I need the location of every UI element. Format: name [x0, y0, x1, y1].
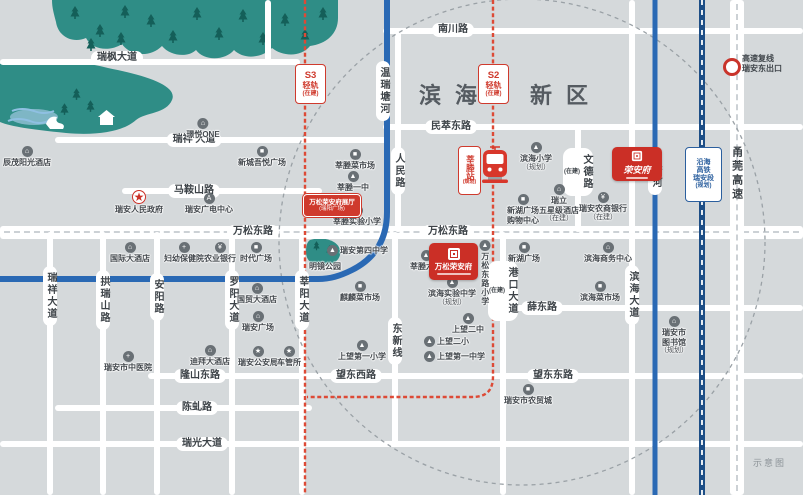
- mall-icon: ■: [518, 194, 529, 205]
- poi-label: 妇幼保健院: [164, 254, 204, 264]
- map-poi: ■滨海菜市场: [580, 281, 620, 303]
- road-label: 薛东路: [521, 301, 563, 315]
- road-label: 甬莞高速: [728, 140, 743, 208]
- school-icon: ▲: [531, 142, 542, 153]
- map-poi: ■新湖广场购物中心: [507, 194, 539, 225]
- star-icon: ★: [253, 346, 264, 357]
- road-label: 温瑞塘河: [376, 61, 390, 121]
- map-poi: ■时代广场: [240, 242, 272, 264]
- map-poi: ¥农业银行: [204, 242, 236, 264]
- hotel-icon: ⌂: [252, 283, 263, 294]
- map-poi: ■麒麟菜市场: [340, 281, 380, 303]
- badge-red: S3轻轨(在建): [295, 64, 326, 104]
- project-subline: [437, 273, 471, 275]
- road-label: 瑞祥大道: [43, 266, 57, 326]
- map-poi: A瑞安广电中心: [185, 193, 233, 215]
- map-poi: ⌂瑞安市图书馆（规划）: [660, 316, 688, 356]
- poi-label: 瑞安广场: [242, 323, 274, 333]
- poi-label: 新湖广场: [508, 254, 540, 264]
- map-poi: ■瑞安市农贸城: [504, 384, 552, 406]
- badge-blue: 沿海高铁瑞安段(规划): [685, 147, 722, 202]
- map-poi: ▲上望二小: [424, 336, 469, 347]
- road-label: 港口大道(在建): [488, 261, 518, 321]
- map-poi: ▲滨海小学（规划）: [520, 142, 552, 172]
- road-label: 陈虬路: [176, 401, 218, 415]
- poi-label: 麒麟菜市场: [340, 293, 380, 303]
- poi-label: 莘塍一中: [337, 183, 369, 193]
- school-icon: ▲: [463, 313, 474, 324]
- map-poi: ★车管所: [277, 346, 301, 368]
- map-poi: ★瑞安人民政府: [115, 190, 163, 215]
- map-poi: ⌂迪拜大酒店: [190, 345, 230, 367]
- exit-line1: 高速复线: [742, 54, 782, 64]
- logo-subline: [626, 177, 648, 179]
- building-icon: ⌂: [253, 311, 264, 322]
- hotel-icon: ⌂: [125, 242, 136, 253]
- poi-label: 瑞立五星级酒店（在建）: [539, 196, 579, 224]
- poi-label: 上望二小: [437, 337, 469, 347]
- mall-icon: ■: [251, 242, 262, 253]
- poi-label: 瑞安市中医院: [104, 363, 152, 373]
- star-icon: ★: [284, 346, 295, 357]
- building-icon: ⌂: [198, 118, 209, 129]
- map-poi: ▲瑞安第四中学: [327, 245, 388, 256]
- map-poi: ⌂瑞安广场: [242, 311, 274, 333]
- road-label: 安阳路: [150, 273, 164, 321]
- media-icon: A: [204, 193, 215, 204]
- hospital-icon: +: [123, 351, 134, 362]
- road-label: 滨海大道: [625, 265, 639, 325]
- map-poi: ¥瑞安农商银行（在建）: [579, 192, 627, 222]
- map-poi: ▲滨海实验中学（规划）: [428, 277, 476, 307]
- bank-icon: ¥: [215, 242, 226, 253]
- poi-label: 上望二中: [452, 325, 484, 335]
- map-poi: ⌂国贸大酒店: [237, 283, 277, 305]
- map-poi: ■新湖广场: [508, 242, 540, 264]
- poi-label: 万松东路小学: [480, 252, 490, 306]
- highway-exit-label: 高速复线 瑞安东出口: [742, 54, 782, 75]
- map-poi: ★瑞安公安局: [238, 346, 278, 368]
- poi-label: 瑞安农商银行（在建）: [579, 204, 627, 222]
- road-label: 拱瑞山路: [96, 270, 110, 330]
- building-icon: ⌂: [554, 184, 565, 195]
- poi-label: 滨海小学（规划）: [520, 154, 552, 172]
- poi-label: 瑞安市农贸城: [504, 396, 552, 406]
- road-label: 瑞光大道: [176, 437, 228, 451]
- library-icon: ⌂: [669, 316, 680, 327]
- hospital-icon: +: [179, 242, 190, 253]
- market-icon: ■: [523, 384, 534, 395]
- map-poi: ■新城吾悦广场: [238, 146, 286, 168]
- poi-label: 明镜公园: [309, 262, 341, 272]
- project-name: 万松荣安府: [435, 261, 473, 272]
- school-icon: ▲: [327, 245, 338, 256]
- poi-label: 滨海实验中学（规划）: [428, 289, 476, 307]
- school-icon: ▲: [424, 336, 435, 347]
- poi-label: 瑞安第四中学: [340, 246, 388, 256]
- gov-icon: ★: [132, 190, 146, 204]
- poi-label: 滨海菜市场: [580, 293, 620, 303]
- road-label: 瑞枫大道: [91, 51, 143, 65]
- road-label: 望东东路: [527, 369, 579, 383]
- school-icon: ▲: [480, 240, 491, 251]
- poi-label: 璟悦ONE: [186, 130, 219, 140]
- road-label: 莘阳大道: [295, 270, 309, 330]
- school-icon: ▲: [357, 340, 368, 351]
- logo-emblem-icon: [632, 150, 642, 160]
- badge-hall: 万松荣安府展厅(瑞阳广场): [303, 194, 361, 217]
- road-label: 万松东路: [422, 225, 474, 239]
- poi-label: 国贸大酒店: [237, 295, 277, 305]
- poi-label: 辰茂阳光酒店: [3, 158, 51, 168]
- scale-note: 示意图: [753, 456, 786, 469]
- market-icon: ■: [355, 281, 366, 292]
- map-poi: ■莘塍菜市场: [335, 149, 375, 171]
- poi-label: 国际大酒店: [110, 254, 150, 264]
- bank-icon: ¥: [598, 192, 609, 203]
- building-icon: ⌂: [603, 242, 614, 253]
- location-map: 瑞枫大道瑞祥 大道马鞍山路南川路民萃东路万松东路万松东路薛东路隆山东路望东西路望…: [0, 0, 803, 495]
- project-marker: 万松荣安府: [429, 243, 478, 280]
- market-icon: ■: [595, 281, 606, 292]
- poi-label: 时代广场: [240, 254, 272, 264]
- exit-line2: 瑞安东出口: [742, 64, 782, 74]
- map-poi: ⌂璟悦ONE: [186, 118, 219, 140]
- poi-label: 上望第一中学: [437, 352, 485, 362]
- road-label: 南川路: [432, 23, 474, 37]
- map-poi: ▲万松东路小学: [480, 240, 491, 306]
- poi-label: 上望第一小学: [338, 352, 386, 362]
- hotel-icon: ⌂: [205, 345, 216, 356]
- school-icon: ▲: [424, 351, 435, 362]
- rongan-logo: 荣安府: [612, 147, 662, 181]
- poi-label: 瑞安公安局: [238, 358, 278, 368]
- map-poi: ⌂滨海商务中心: [584, 242, 632, 264]
- region-title-right: 新区: [530, 78, 602, 110]
- poi-label: 瑞安广电中心: [185, 205, 233, 215]
- poi-label: 瑞安人民政府: [115, 205, 163, 215]
- poi-label: 新湖广场购物中心: [507, 206, 539, 225]
- map-poi: ▲莘塍一中: [337, 171, 369, 193]
- road-label: 万松东路: [227, 225, 279, 239]
- mall-icon: ■: [519, 242, 530, 253]
- project-emblem-icon: [448, 248, 460, 260]
- road-label: 隆山东路: [174, 369, 226, 383]
- market-icon: ■: [350, 149, 361, 160]
- map-poi: ⌂国际大酒店: [110, 242, 150, 264]
- map-poi: +瑞安市中医院: [104, 351, 152, 373]
- mall-icon: ■: [257, 146, 268, 157]
- poi-label: 瑞安市图书馆（规划）: [660, 328, 688, 356]
- road-label: 民萃东路: [425, 120, 477, 134]
- school-icon: ▲: [348, 171, 359, 182]
- road-label: 望东西路: [330, 369, 382, 383]
- road-label: 东新线: [388, 317, 402, 365]
- labels-layer: 瑞枫大道瑞祥 大道马鞍山路南川路民萃东路万松东路万松东路薛东路隆山东路望东西路望…: [0, 0, 803, 495]
- poi-label: 莘塍实验小学: [333, 217, 381, 227]
- poi-label: 车管所: [277, 358, 301, 368]
- region-title-left: 滨海: [419, 78, 491, 110]
- poi-label: 新城吾悦广场: [238, 158, 286, 168]
- map-poi: ⌂辰茂阳光酒店: [3, 146, 51, 168]
- map-poi: +妇幼保健院: [164, 242, 204, 264]
- map-poi: 明镜公园: [309, 262, 341, 272]
- poi-label: 滨海商务中心: [584, 254, 632, 264]
- highway-exit-icon: [723, 58, 741, 76]
- hotel-icon: ⌂: [22, 146, 33, 157]
- map-poi: ▲上望第一中学: [424, 351, 485, 362]
- poi-label: 迪拜大酒店: [190, 357, 230, 367]
- badge-station: 莘塍站(规划): [458, 146, 481, 195]
- map-poi: ▲上望第一小学: [338, 340, 386, 362]
- logo-name: 荣安府: [623, 163, 650, 176]
- map-poi: ⌂瑞立五星级酒店（在建）: [539, 184, 579, 224]
- poi-label: 农业银行: [204, 254, 236, 264]
- road-label: 人民路: [391, 147, 405, 195]
- map-poi: ▲上望二中: [452, 313, 484, 335]
- poi-label: 莘塍菜市场: [335, 161, 375, 171]
